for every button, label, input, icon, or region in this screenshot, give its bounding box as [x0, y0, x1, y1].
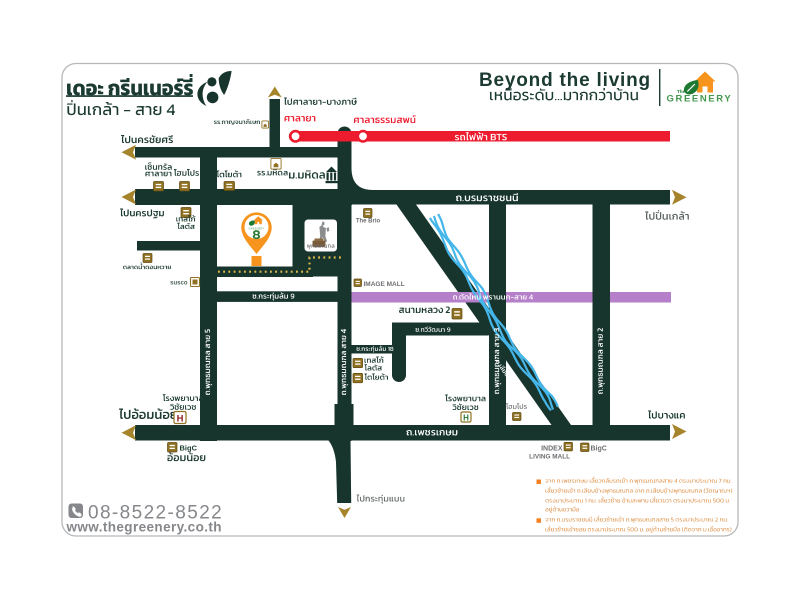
svg-text:BigC: BigC: [180, 444, 198, 453]
svg-text:Beyond the living: Beyond the living: [479, 70, 651, 91]
svg-text:IMAGE MALL: IMAGE MALL: [364, 281, 405, 288]
svg-text:GREENERY: GREENERY: [667, 94, 733, 105]
svg-text:H: H: [463, 414, 469, 423]
svg-text:www.thegreenery.co.th: www.thegreenery.co.th: [66, 520, 222, 535]
svg-text:H: H: [177, 414, 184, 425]
svg-text:INDEX: INDEX: [541, 446, 563, 453]
svg-text:LIVING MALL: LIVING MALL: [529, 454, 570, 461]
svg-text:susco: susco: [170, 281, 188, 287]
svg-text:The Brio: The Brio: [356, 219, 381, 225]
svg-text:GREENERY: GREENERY: [249, 228, 265, 231]
svg-text:BigC: BigC: [591, 446, 607, 453]
